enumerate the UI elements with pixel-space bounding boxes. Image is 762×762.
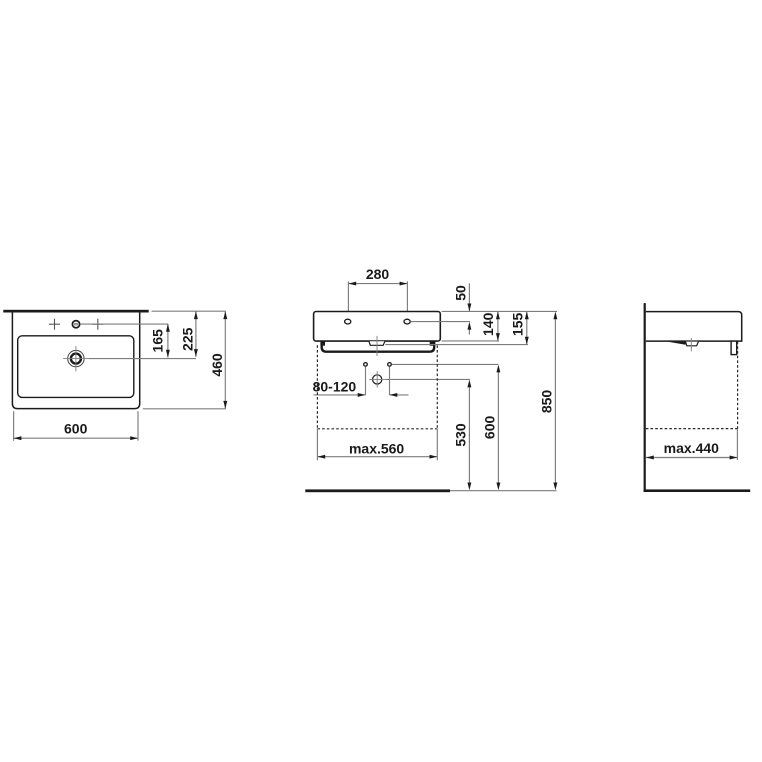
svg-text:165: 165 [150,329,166,353]
svg-text:225: 225 [179,327,195,351]
svg-text:50: 50 [453,285,469,301]
svg-text:140: 140 [480,312,496,336]
svg-text:80-120: 80-120 [313,378,357,394]
svg-text:280: 280 [366,266,390,282]
svg-text:max.560: max.560 [349,440,404,456]
svg-text:155: 155 [509,313,525,337]
svg-text:460: 460 [209,353,225,377]
svg-text:600: 600 [64,421,88,437]
svg-text:600: 600 [481,416,497,440]
svg-text:850: 850 [538,390,554,414]
svg-text:max.440: max.440 [664,440,719,456]
svg-text:530: 530 [453,423,469,447]
